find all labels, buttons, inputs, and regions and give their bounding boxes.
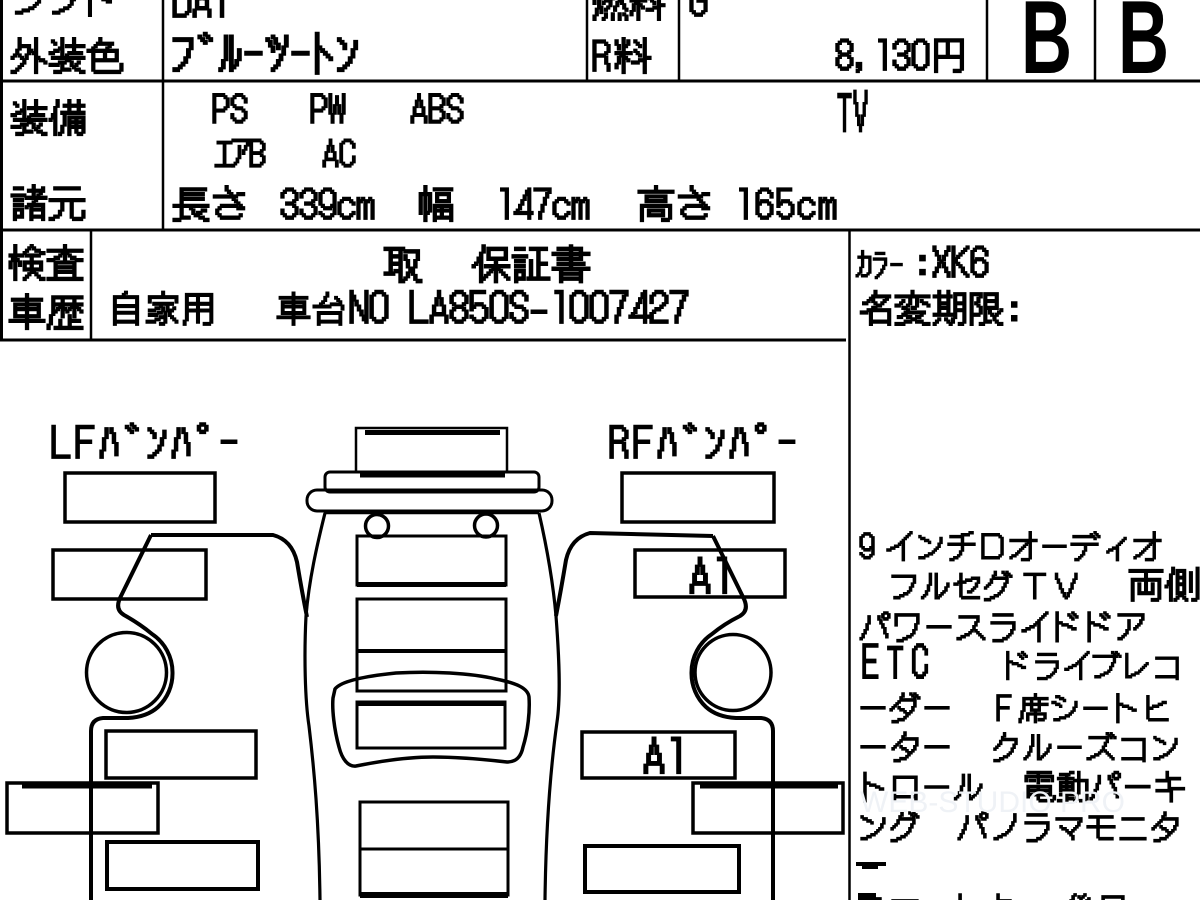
svg-text:B: B (1118, 0, 1169, 95)
svg-text:B: B (1021, 0, 1072, 95)
svg-text:WEB-STUDIO PRO: WEB-STUDIO PRO (860, 786, 1125, 819)
